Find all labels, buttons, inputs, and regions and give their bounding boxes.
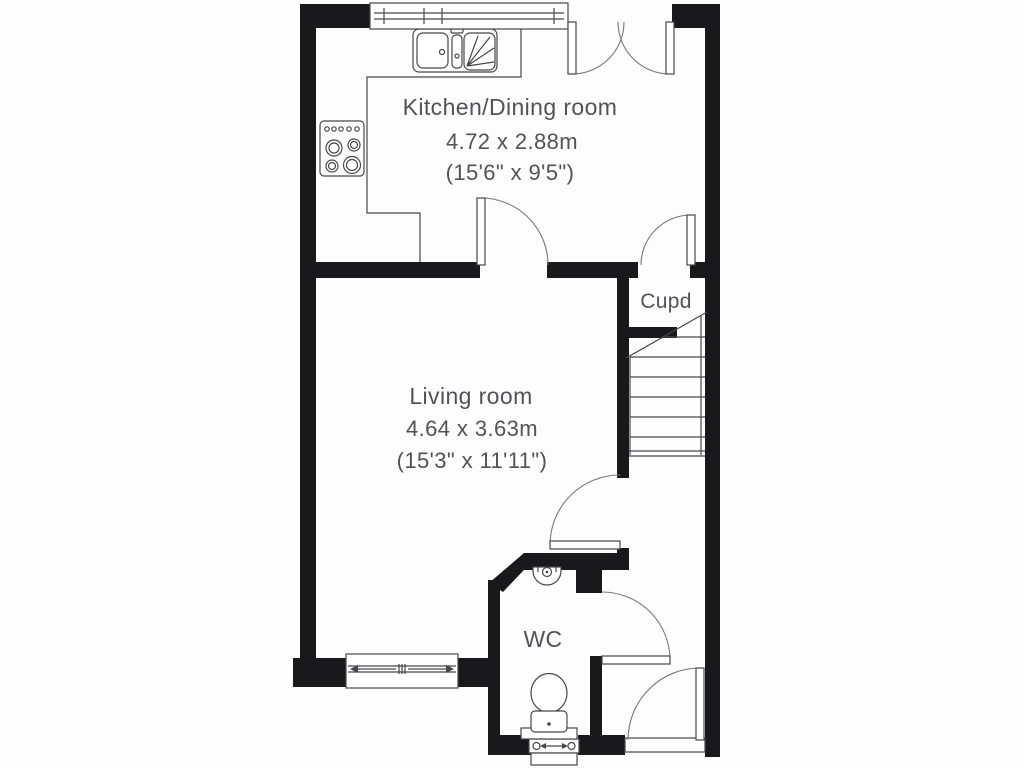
kitchen-room-name: Kitchen/Dining room bbox=[403, 94, 618, 120]
wall-right bbox=[705, 4, 720, 757]
wall-left bbox=[300, 4, 316, 687]
wall-cupboard-bottom bbox=[617, 327, 677, 338]
living-room-window bbox=[346, 654, 458, 688]
wall-bottom-living-b bbox=[457, 658, 500, 687]
hob-icon bbox=[320, 121, 364, 176]
wall-bottom-living-a bbox=[300, 658, 348, 687]
wc-label: WC bbox=[523, 626, 562, 652]
wash-basin-icon bbox=[533, 567, 561, 585]
kitchen-size-imperial: (15'6" x 9'5") bbox=[446, 160, 575, 185]
living-room-door bbox=[550, 475, 620, 549]
wall-wc-right-lower bbox=[590, 656, 602, 748]
wc-door bbox=[602, 592, 670, 664]
cupboard-door bbox=[641, 215, 695, 265]
wall-wc-right-upper bbox=[576, 570, 602, 593]
kitchen-size-metric: 4.72 x 2.88m bbox=[446, 129, 578, 154]
floor-plan: Kitchen/Dining room 4.72 x 2.88m (15'6" … bbox=[0, 0, 1024, 768]
french-doors bbox=[568, 22, 674, 74]
living-room-name: Living room bbox=[409, 383, 532, 409]
wall-bottom-right-corner bbox=[705, 730, 720, 757]
living-size-imperial: (15'3" x 11'11") bbox=[397, 448, 548, 473]
wall-bottom-wc-b bbox=[578, 735, 625, 755]
wall-hall bbox=[617, 262, 629, 478]
kitchen-door bbox=[477, 198, 548, 265]
floor-plan-drawing: Kitchen/Dining room 4.72 x 2.88m (15'6" … bbox=[0, 0, 1024, 768]
front-door bbox=[625, 668, 705, 752]
living-size-metric: 4.64 x 3.63m bbox=[406, 416, 538, 441]
wc-window bbox=[529, 739, 579, 765]
kitchen-sink-icon bbox=[413, 27, 497, 72]
cupboard-label: Cupd bbox=[640, 290, 691, 313]
kitchen-window bbox=[370, 3, 568, 29]
wall-divider-a bbox=[315, 262, 480, 278]
toilet-icon bbox=[521, 674, 577, 740]
